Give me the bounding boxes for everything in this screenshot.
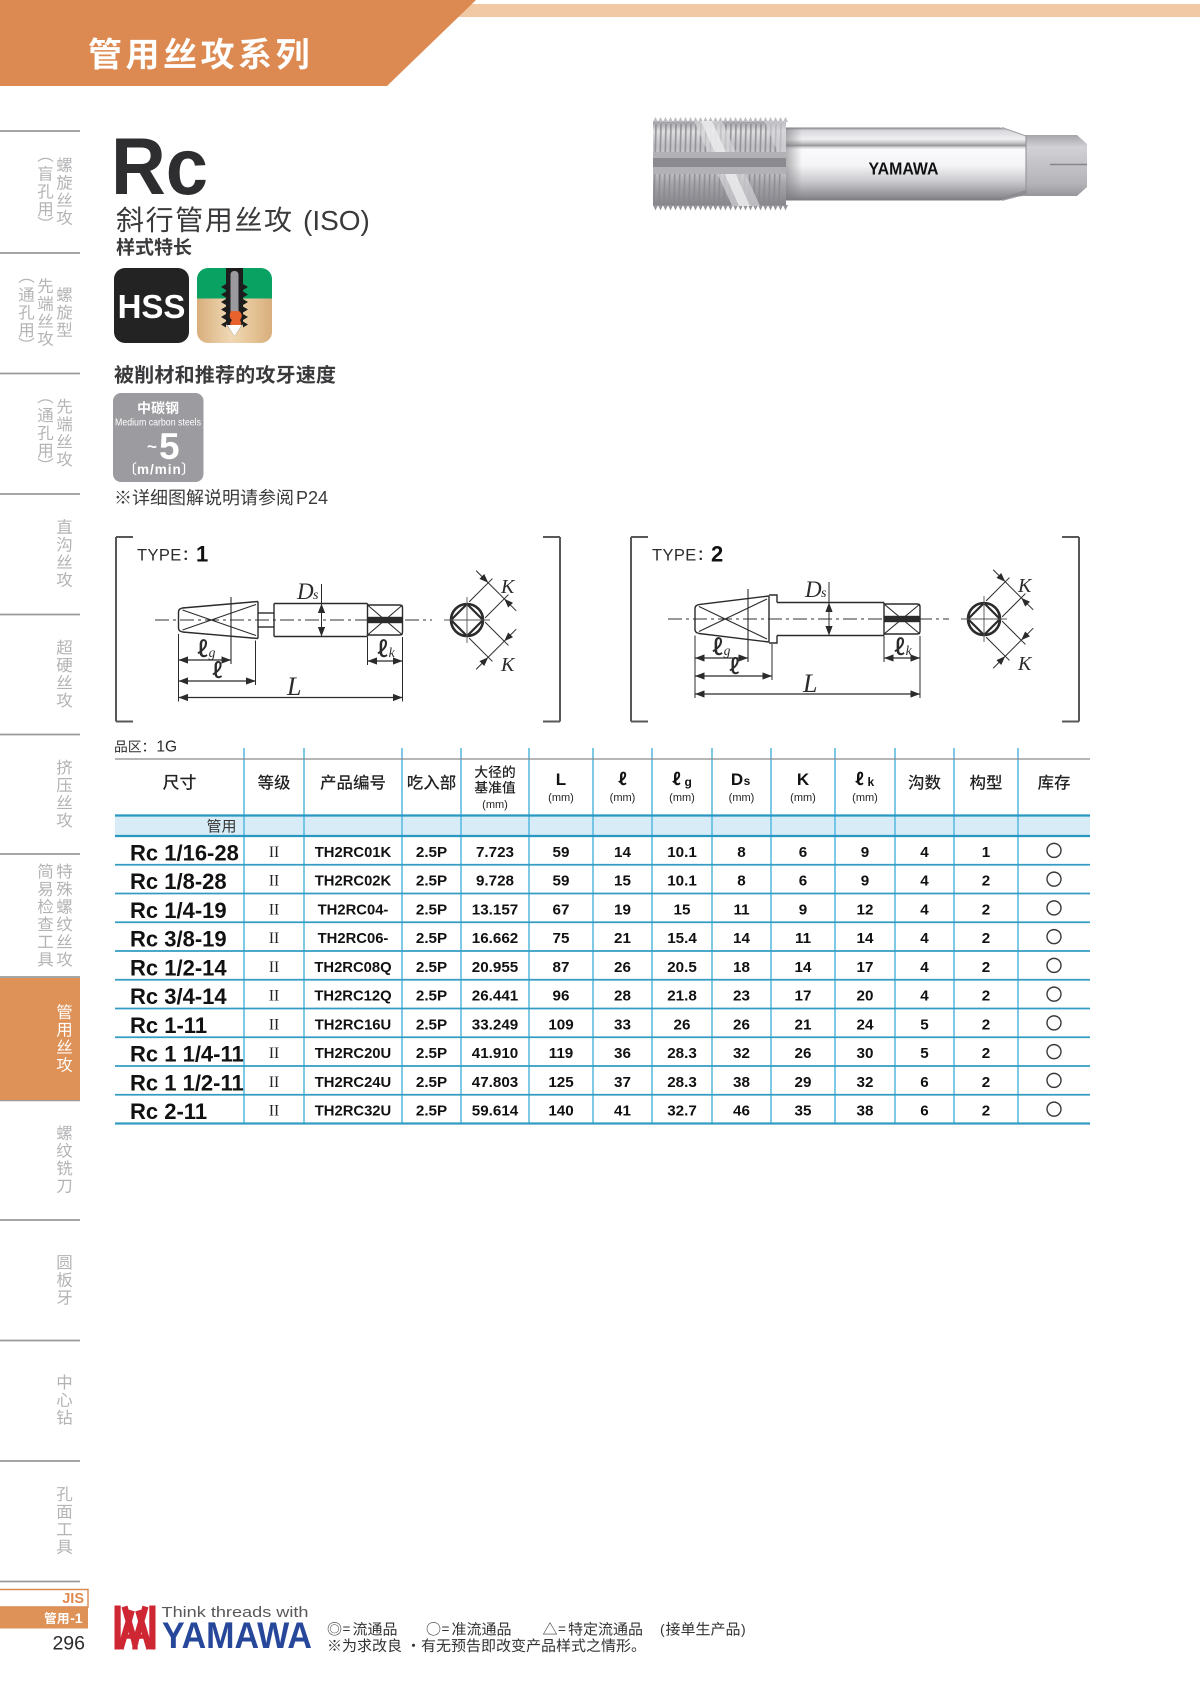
svg-text:32.7: 32.7 xyxy=(667,1103,697,1120)
svg-text:32: 32 xyxy=(733,1045,750,1062)
svg-text:Rc 1/8-28: Rc 1/8-28 xyxy=(130,869,227,894)
svg-text:TH2RC08Q: TH2RC08Q xyxy=(314,960,391,976)
svg-text:II: II xyxy=(269,930,279,947)
svg-text:2.5P: 2.5P xyxy=(416,1103,447,1120)
svg-text:Medium carbon steels: Medium carbon steels xyxy=(115,418,201,429)
svg-text:(mm): (mm) xyxy=(610,792,636,804)
svg-text:Rc 1 1/4-11: Rc 1 1/4-11 xyxy=(130,1042,244,1067)
svg-text:14: 14 xyxy=(795,959,812,976)
svg-text:1: 1 xyxy=(982,844,991,861)
svg-text:96: 96 xyxy=(553,988,570,1005)
svg-text:28.3: 28.3 xyxy=(667,1045,697,1062)
svg-text:TYPE: TYPE xyxy=(137,547,182,565)
svg-text:Rc 1/4-19: Rc 1/4-19 xyxy=(130,898,227,923)
svg-text:Rc 1/2-14: Rc 1/2-14 xyxy=(130,955,227,980)
svg-text:s: s xyxy=(821,586,827,601)
svg-text:2.5P: 2.5P xyxy=(416,844,447,861)
svg-text:8: 8 xyxy=(737,844,745,861)
svg-text:K: K xyxy=(797,770,810,789)
svg-text:10.1: 10.1 xyxy=(667,873,697,890)
svg-text:29: 29 xyxy=(795,1074,812,1091)
svg-text:6: 6 xyxy=(799,873,807,890)
svg-text:2.5P: 2.5P xyxy=(416,1016,447,1033)
svg-text:TH2RC06-: TH2RC06- xyxy=(318,931,389,947)
svg-text:125: 125 xyxy=(548,1074,574,1091)
svg-text:L: L xyxy=(802,669,817,698)
svg-text:(: ( xyxy=(660,1621,665,1637)
svg-text:2.5P: 2.5P xyxy=(416,959,447,976)
svg-text:2: 2 xyxy=(982,959,990,976)
svg-text:2: 2 xyxy=(982,873,990,890)
svg-text:II: II xyxy=(269,1103,279,1120)
svg-text:5: 5 xyxy=(920,1045,929,1062)
svg-text:18: 18 xyxy=(733,959,750,976)
svg-text:s: s xyxy=(744,774,751,788)
svg-text:26: 26 xyxy=(795,1045,812,1062)
svg-text:2.5P: 2.5P xyxy=(416,930,447,947)
svg-text:8: 8 xyxy=(737,873,745,890)
svg-text:15.4: 15.4 xyxy=(667,930,697,947)
svg-text:=: = xyxy=(442,1622,450,1637)
svg-text:11: 11 xyxy=(733,901,750,918)
svg-text:2: 2 xyxy=(982,1074,990,1091)
svg-text:4: 4 xyxy=(920,988,929,1005)
svg-text:23: 23 xyxy=(733,988,750,1005)
svg-text:33.249: 33.249 xyxy=(472,1016,518,1033)
svg-text:Rc 1-11: Rc 1-11 xyxy=(130,1013,207,1038)
svg-text:YAMAWA: YAMAWA xyxy=(162,1615,312,1656)
svg-text:II: II xyxy=(269,1016,279,1033)
svg-text:17: 17 xyxy=(795,988,812,1005)
svg-text:g: g xyxy=(724,643,731,658)
svg-text:II: II xyxy=(269,901,279,918)
svg-text:20.5: 20.5 xyxy=(667,959,697,976)
svg-text:2.5P: 2.5P xyxy=(416,1074,447,1091)
svg-text:D: D xyxy=(804,577,822,602)
svg-text:2: 2 xyxy=(982,1016,990,1033)
svg-text:9.728: 9.728 xyxy=(476,873,514,890)
svg-text:14: 14 xyxy=(857,930,874,947)
svg-text:K: K xyxy=(500,576,516,598)
svg-text:2.5P: 2.5P xyxy=(416,901,447,918)
svg-text:5: 5 xyxy=(920,1016,929,1033)
svg-text:10.1: 10.1 xyxy=(667,844,697,861)
svg-text:36: 36 xyxy=(614,1045,631,1062)
svg-text:K: K xyxy=(1017,575,1033,597)
svg-text:14: 14 xyxy=(733,930,750,947)
svg-text:D: D xyxy=(731,770,743,789)
svg-text:II: II xyxy=(269,844,279,861)
svg-text:II: II xyxy=(269,1074,279,1091)
svg-text:2: 2 xyxy=(711,542,723,567)
svg-text:II: II xyxy=(269,959,279,976)
svg-text:(mm): (mm) xyxy=(669,792,695,804)
svg-text:41: 41 xyxy=(614,1103,631,1120)
svg-text:37: 37 xyxy=(614,1074,631,1091)
svg-text:59: 59 xyxy=(553,844,570,861)
svg-text:(ISO): (ISO) xyxy=(303,205,370,236)
svg-text:Rc 2-11: Rc 2-11 xyxy=(130,1099,207,1124)
svg-text:1: 1 xyxy=(196,542,208,567)
svg-text:2: 2 xyxy=(982,988,990,1005)
svg-text:(mm): (mm) xyxy=(852,792,878,804)
svg-text:=: = xyxy=(343,1622,351,1637)
svg-text:75: 75 xyxy=(553,930,570,947)
svg-text:k: k xyxy=(906,643,913,658)
svg-text:47.803: 47.803 xyxy=(472,1074,518,1091)
svg-text:s: s xyxy=(313,588,319,603)
svg-text:1G: 1G xyxy=(156,739,177,756)
svg-text:Rc 3/8-19: Rc 3/8-19 xyxy=(130,927,227,952)
svg-text:26.441: 26.441 xyxy=(472,988,519,1005)
svg-text:g: g xyxy=(685,775,692,789)
svg-text:59: 59 xyxy=(553,873,570,890)
svg-text:YAMAWA: YAMAWA xyxy=(869,159,939,179)
svg-text:140: 140 xyxy=(548,1103,573,1120)
svg-text:4: 4 xyxy=(920,873,929,890)
svg-text:=: = xyxy=(558,1622,566,1637)
svg-text:TH2RC16U: TH2RC16U xyxy=(315,1017,391,1033)
svg-text:26: 26 xyxy=(614,959,631,976)
svg-text:k: k xyxy=(389,645,396,660)
svg-text:Rc: Rc xyxy=(111,122,208,212)
svg-text:20: 20 xyxy=(857,988,874,1005)
svg-text:6: 6 xyxy=(920,1074,928,1091)
svg-text:16.662: 16.662 xyxy=(472,930,518,947)
svg-text:2: 2 xyxy=(982,901,990,918)
svg-text:109: 109 xyxy=(548,1016,573,1033)
svg-text:g: g xyxy=(209,645,216,660)
svg-text:15: 15 xyxy=(614,873,631,890)
svg-text:2: 2 xyxy=(982,1103,990,1120)
svg-text:TH2RC20U: TH2RC20U xyxy=(315,1046,391,1062)
svg-text:Rc 1 1/2-11: Rc 1 1/2-11 xyxy=(130,1070,244,1095)
svg-text:38: 38 xyxy=(857,1103,874,1120)
svg-text:Rc 1/16-28: Rc 1/16-28 xyxy=(130,840,239,865)
svg-text:38: 38 xyxy=(733,1074,750,1091)
svg-text:TH2RC12Q: TH2RC12Q xyxy=(314,989,391,1005)
svg-text:28: 28 xyxy=(614,988,631,1005)
svg-text:11: 11 xyxy=(795,930,812,947)
svg-text:D: D xyxy=(296,579,314,604)
svg-text:Rc 3/4-14: Rc 3/4-14 xyxy=(130,984,227,1009)
svg-text:119: 119 xyxy=(549,1045,574,1062)
svg-text:35: 35 xyxy=(795,1103,812,1120)
svg-text:4: 4 xyxy=(920,844,929,861)
svg-text:5: 5 xyxy=(159,426,180,467)
svg-text:26: 26 xyxy=(674,1016,691,1033)
svg-text:2.5P: 2.5P xyxy=(416,988,447,1005)
svg-text:9: 9 xyxy=(861,844,869,861)
svg-text:JIS: JIS xyxy=(62,1591,84,1607)
svg-text:K: K xyxy=(500,654,516,676)
svg-text:46: 46 xyxy=(733,1103,750,1120)
svg-text:4: 4 xyxy=(920,901,929,918)
svg-text:59.614: 59.614 xyxy=(472,1103,519,1120)
svg-text:(mm): (mm) xyxy=(729,792,755,804)
svg-text:II: II xyxy=(269,1045,279,1062)
svg-text:L: L xyxy=(556,770,566,789)
svg-text:17: 17 xyxy=(857,959,874,976)
svg-text:TH2RC24U: TH2RC24U xyxy=(315,1075,391,1091)
svg-text:26: 26 xyxy=(733,1016,750,1033)
svg-text:2.5P: 2.5P xyxy=(416,873,447,890)
svg-text:19: 19 xyxy=(614,901,631,918)
svg-text:32: 32 xyxy=(857,1074,874,1091)
svg-text:7.723: 7.723 xyxy=(476,844,514,861)
svg-text:TYPE: TYPE xyxy=(652,547,697,565)
svg-text:9: 9 xyxy=(799,901,807,918)
svg-text:24: 24 xyxy=(857,1016,874,1033)
svg-text:L: L xyxy=(286,672,301,701)
svg-text:87: 87 xyxy=(553,959,570,976)
svg-text:4: 4 xyxy=(920,930,929,947)
svg-text:67: 67 xyxy=(553,901,570,918)
svg-text:21.8: 21.8 xyxy=(667,988,697,1005)
svg-text:41.910: 41.910 xyxy=(472,1045,518,1062)
svg-text:30: 30 xyxy=(857,1045,874,1062)
svg-text:9: 9 xyxy=(861,873,869,890)
svg-text:m/min: m/min xyxy=(137,462,182,477)
svg-text:2.5P: 2.5P xyxy=(416,1045,447,1062)
svg-text:TH2RC04-: TH2RC04- xyxy=(318,902,389,918)
svg-text:21: 21 xyxy=(795,1016,812,1033)
svg-text:P24: P24 xyxy=(296,488,328,508)
svg-text:II: II xyxy=(269,988,279,1005)
svg-text:33: 33 xyxy=(614,1016,631,1033)
svg-text:(mm): (mm) xyxy=(482,799,508,811)
svg-text:2: 2 xyxy=(982,930,990,947)
svg-text:21: 21 xyxy=(614,930,631,947)
svg-text:4: 4 xyxy=(920,959,929,976)
svg-text:TH2RC01K: TH2RC01K xyxy=(315,845,392,861)
svg-text:15: 15 xyxy=(674,901,691,918)
svg-text:(mm): (mm) xyxy=(790,792,816,804)
svg-text:2: 2 xyxy=(982,1045,990,1062)
svg-text:HSS: HSS xyxy=(118,288,186,325)
svg-text:k: k xyxy=(868,775,875,789)
svg-text:TH2RC32U: TH2RC32U xyxy=(315,1104,391,1120)
svg-text:K: K xyxy=(1017,653,1033,675)
svg-text:296: 296 xyxy=(52,1633,85,1655)
svg-text:-1: -1 xyxy=(70,1610,83,1626)
svg-text:~: ~ xyxy=(147,437,157,456)
svg-text:12: 12 xyxy=(857,901,874,918)
svg-text:20.955: 20.955 xyxy=(472,959,519,976)
svg-text:13.157: 13.157 xyxy=(472,901,518,918)
svg-text:6: 6 xyxy=(799,844,807,861)
svg-text:14: 14 xyxy=(614,844,631,861)
svg-text:TH2RC02K: TH2RC02K xyxy=(315,874,392,890)
svg-text:): ) xyxy=(741,1621,746,1637)
svg-text:(mm): (mm) xyxy=(548,792,574,804)
svg-text:II: II xyxy=(269,873,279,890)
svg-text:28.3: 28.3 xyxy=(667,1074,697,1091)
svg-text:6: 6 xyxy=(920,1103,928,1120)
